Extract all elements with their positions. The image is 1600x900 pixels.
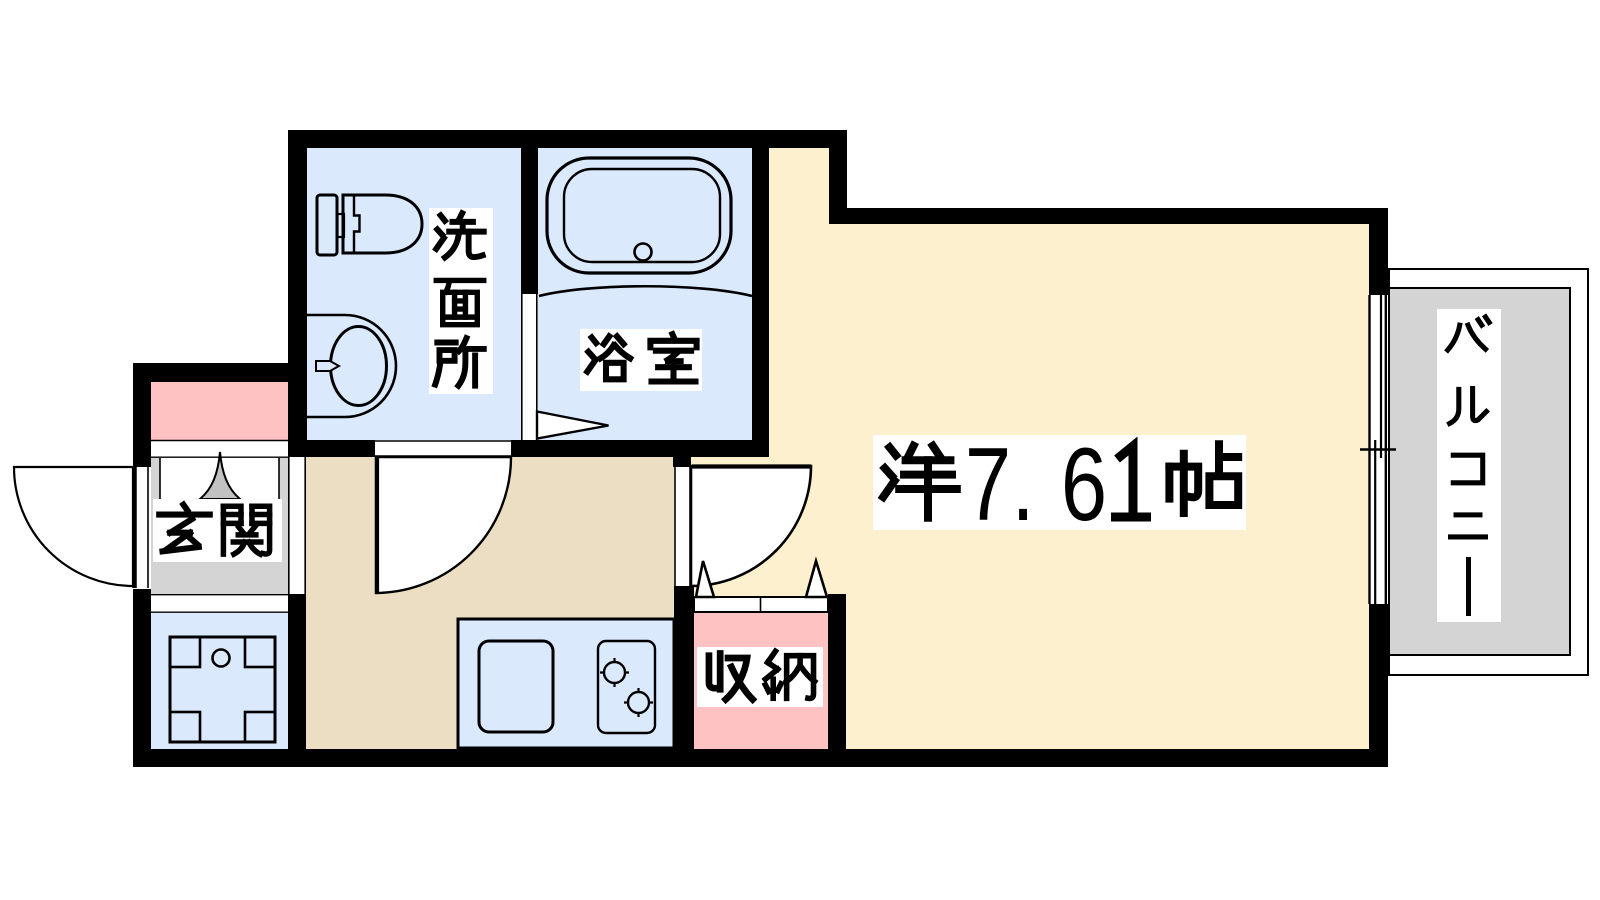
svg-text:.: . bbox=[1011, 426, 1034, 542]
svg-text:6: 6 bbox=[1061, 426, 1107, 542]
svg-text:7: 7 bbox=[965, 426, 1011, 542]
